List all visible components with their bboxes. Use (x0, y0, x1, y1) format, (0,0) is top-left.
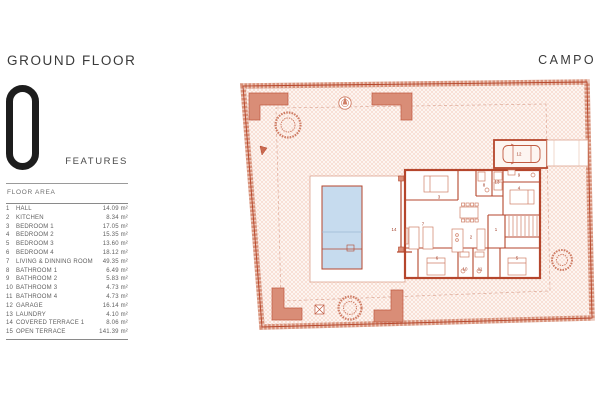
car-icon (503, 144, 540, 164)
brochure-page: GROUND FLOOR CAMPO 0 FEATURES FLOOR AREA… (0, 0, 600, 400)
room-label: 12 (517, 152, 522, 157)
room-label: 11 (478, 267, 483, 272)
north-arrow-icon (339, 97, 351, 110)
pool (322, 186, 362, 269)
room-label: 14 (392, 227, 397, 232)
room-label: 13 (495, 180, 500, 185)
room-label: 10 (463, 267, 468, 272)
driveway (547, 140, 588, 166)
floor-plan: 1 2 3 4 5 6 7 8 9 10 11 12 13 14 (0, 0, 600, 400)
drain-icon (315, 305, 324, 314)
